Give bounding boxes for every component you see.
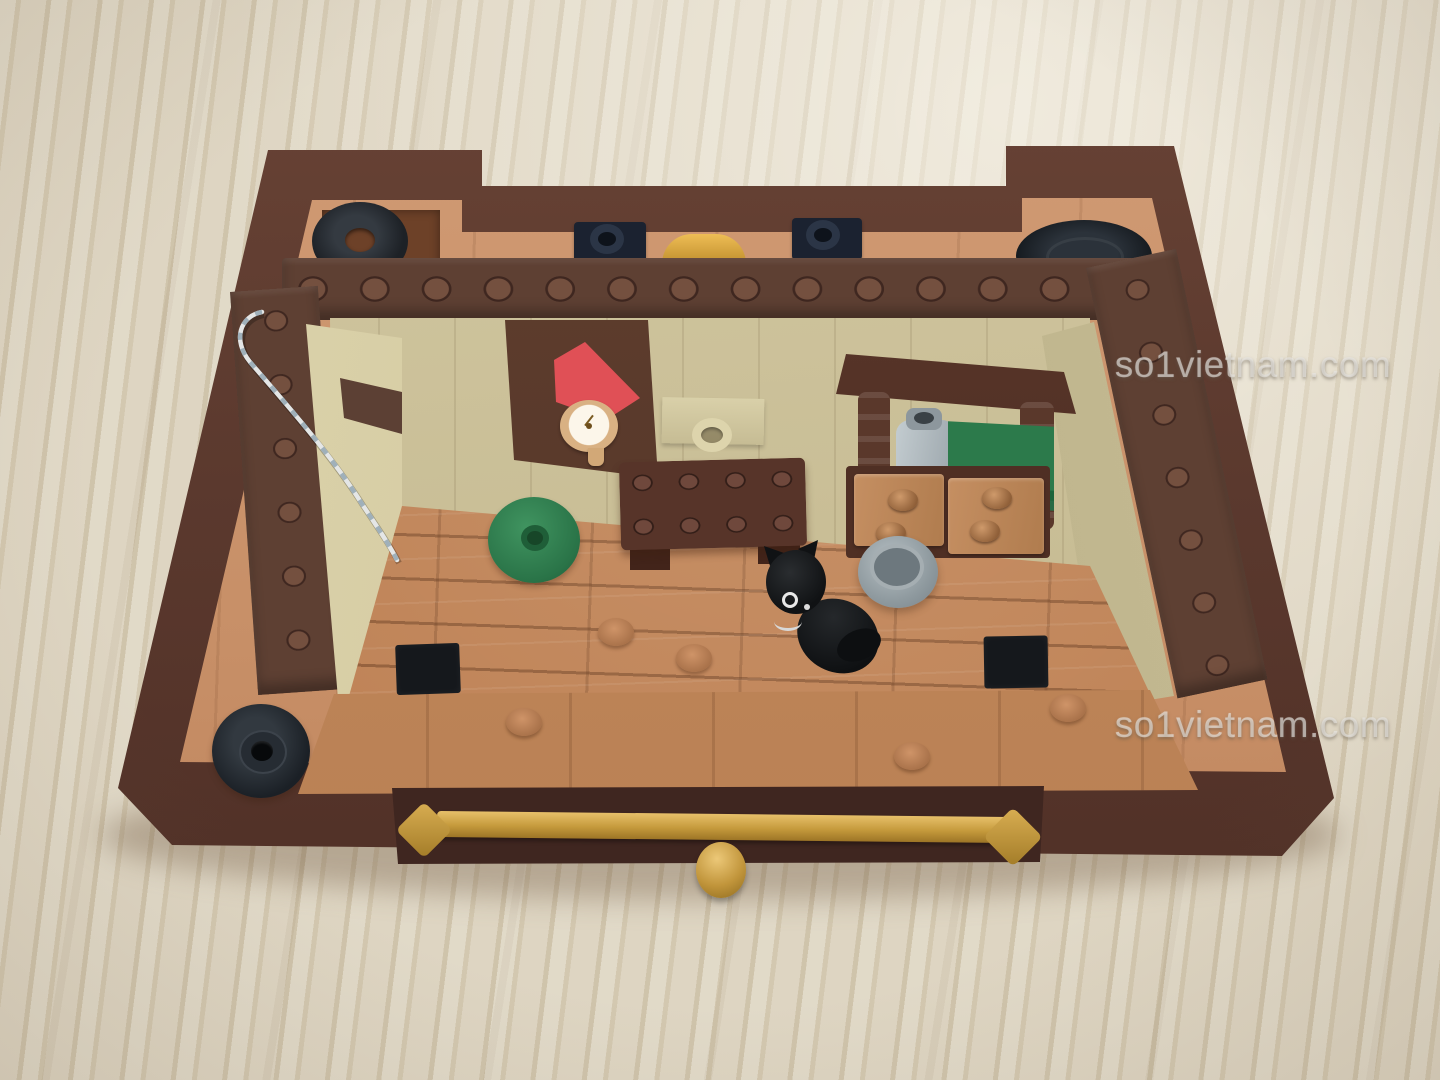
watermark-top: so1vietnam.com <box>1068 344 1438 386</box>
photo-vignette <box>0 0 1440 1080</box>
watermark-bottom: so1vietnam.com <box>1068 704 1438 746</box>
lego-room-photo: so1vietnam.com so1vietnam.com <box>0 0 1440 1080</box>
